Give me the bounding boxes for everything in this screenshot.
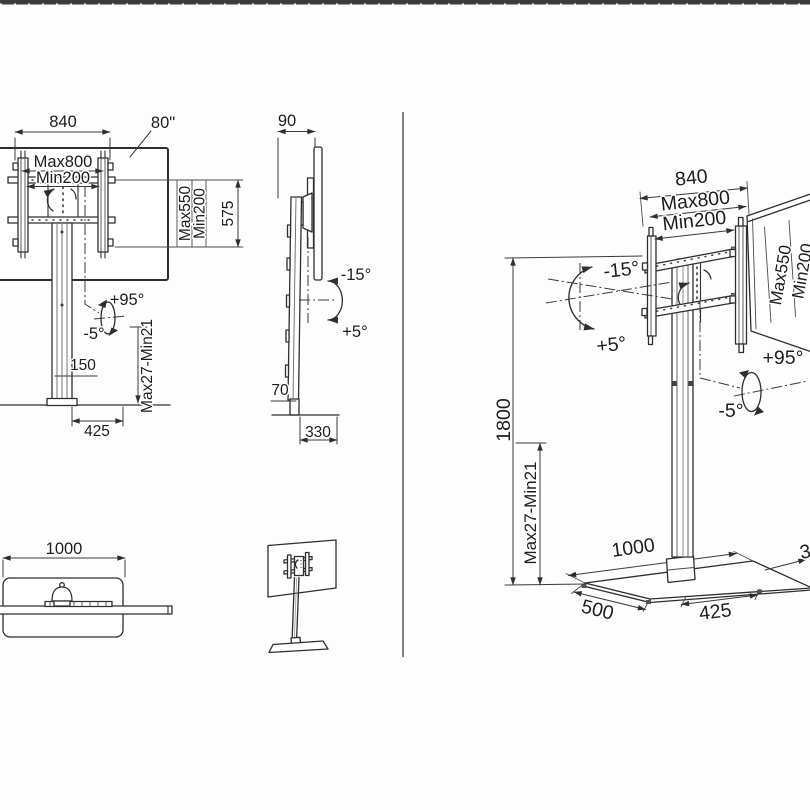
top-bar	[0, 0, 810, 5]
swivel-axis-horizontal	[94, 316, 127, 319]
bolt	[108, 239, 113, 246]
pole-foot	[47, 399, 77, 406]
dim-1000-label: 1000	[610, 534, 656, 562]
bolt	[649, 336, 653, 345]
bolt	[739, 218, 744, 227]
vesa-plate-left	[288, 555, 292, 578]
front-view: Max550 Min200 575	[0, 113, 243, 440]
dim-575-label: 575	[220, 201, 237, 227]
swivel-ellipse	[742, 373, 761, 412]
bolt-nub	[642, 309, 647, 316]
knob-dome	[52, 587, 72, 601]
side-dim-330: 330	[300, 417, 337, 444]
bolt	[13, 239, 18, 246]
bolt-nub	[730, 250, 736, 257]
rotation-arc	[704, 270, 711, 279]
extension-line	[640, 192, 643, 226]
vesa-height-min-label: Min200	[192, 188, 209, 239]
front-pole	[52, 223, 72, 405]
swivel-plus-label: +95°	[763, 347, 804, 369]
dim-425-label: 425	[698, 599, 733, 625]
front-dim-min200: Min200	[27, 169, 99, 187]
iso-dim-1800: 1800	[493, 256, 642, 585]
swivel-plus-label: +95°	[110, 291, 145, 309]
height-range-label: Max27-Min21	[521, 462, 540, 565]
tilt-down-label: -15°	[341, 266, 371, 284]
tilt-arc	[569, 267, 594, 329]
top-dim-1000: 1000	[3, 540, 125, 577]
tilt-down-label: -15°	[602, 257, 640, 283]
swivel-minus-label: -5°	[83, 325, 104, 343]
plate-outline	[18, 158, 28, 252]
swivel-axis-line	[700, 302, 740, 388]
bolt	[739, 344, 744, 353]
pole-slot	[288, 225, 291, 237]
iso-dim-330-clipped: 330	[765, 537, 810, 570]
top-view: 1000	[0, 540, 172, 637]
iso-screen-panel: Max550 Min200	[747, 194, 810, 353]
dim-70-label: 70	[271, 382, 289, 399]
tick-line-top	[505, 256, 642, 258]
dim-1000-label: 1000	[46, 540, 83, 558]
dim-330-label: 330	[305, 424, 331, 441]
plate-outline	[98, 158, 108, 252]
pole-slot	[287, 295, 290, 307]
pole-slot	[286, 365, 289, 377]
dim-425-label: 425	[84, 423, 110, 440]
knob-neck	[54, 601, 70, 606]
bolt	[108, 163, 113, 170]
tilt-up-label: +5°	[342, 323, 367, 341]
tv-stand-dimension-drawing: Max550 Min200 575	[0, 0, 810, 810]
technical-drawing-page: Max550 Min200 575	[0, 0, 810, 810]
dimension-line	[765, 560, 806, 571]
front-dim-height-range: Max27-Min21	[130, 319, 156, 413]
iso-dim-height-range: Max27-Min21	[516, 443, 546, 585]
iso-vesa-plate-right	[730, 218, 747, 353]
tilt-up-label: +5°	[595, 333, 627, 358]
dim-90-label: 90	[278, 112, 296, 130]
screen-size-label: 80"	[151, 114, 175, 132]
dim-150-label: 150	[70, 357, 96, 374]
tilt-arc	[328, 281, 342, 320]
side-view: 90 -15° +5° 70	[271, 112, 371, 444]
top-edge-bar	[0, 0, 810, 5]
bolt-nub	[643, 263, 648, 270]
mini-pictorial-view	[268, 540, 336, 653]
extension-line	[681, 597, 686, 608]
dim-330-label: 330	[798, 537, 810, 564]
pole-joint-mark	[689, 381, 694, 386]
swivel-minus-label: -5°	[718, 400, 743, 422]
plate-outline	[736, 226, 747, 344]
perspective-view: 1000 500 425 330	[493, 165, 810, 625]
front-dim-425: 425	[72, 407, 123, 440]
screen-top-edge-bar	[0, 606, 172, 614]
dim-840-label: 840	[674, 165, 709, 190]
pole-slot	[287, 258, 290, 270]
bolt	[649, 228, 653, 237]
pole-slot	[286, 330, 289, 342]
height-range-label: Max27-Min21	[139, 319, 156, 413]
extension-line	[734, 552, 753, 562]
extension-line	[747, 182, 749, 215]
swivel-axis-horizontal	[734, 381, 808, 396]
pole-bolt	[61, 304, 64, 307]
dim-500-label: 500	[579, 596, 616, 625]
dim-840-label: 840	[49, 113, 77, 131]
side-tilt-symbol: -15° +5°	[299, 237, 371, 341]
vesa-width-min-label: Min200	[36, 169, 90, 187]
dim-1800-label: 1800	[493, 398, 515, 442]
swivel-arrow	[98, 300, 107, 309]
base-plate	[269, 641, 328, 653]
tick-line-bottom	[505, 584, 586, 585]
pole-bolt	[61, 231, 64, 234]
swivel-arrow	[109, 328, 119, 337]
tv-screen-edge	[314, 147, 322, 280]
swivel-arrow	[754, 407, 764, 416]
tilt-arm	[303, 193, 312, 232]
bolt	[13, 163, 18, 170]
side-pole	[286, 197, 302, 400]
pole-joint-mark	[673, 381, 677, 386]
vesa-plate-right	[306, 553, 310, 576]
bolt-nub	[730, 296, 736, 303]
